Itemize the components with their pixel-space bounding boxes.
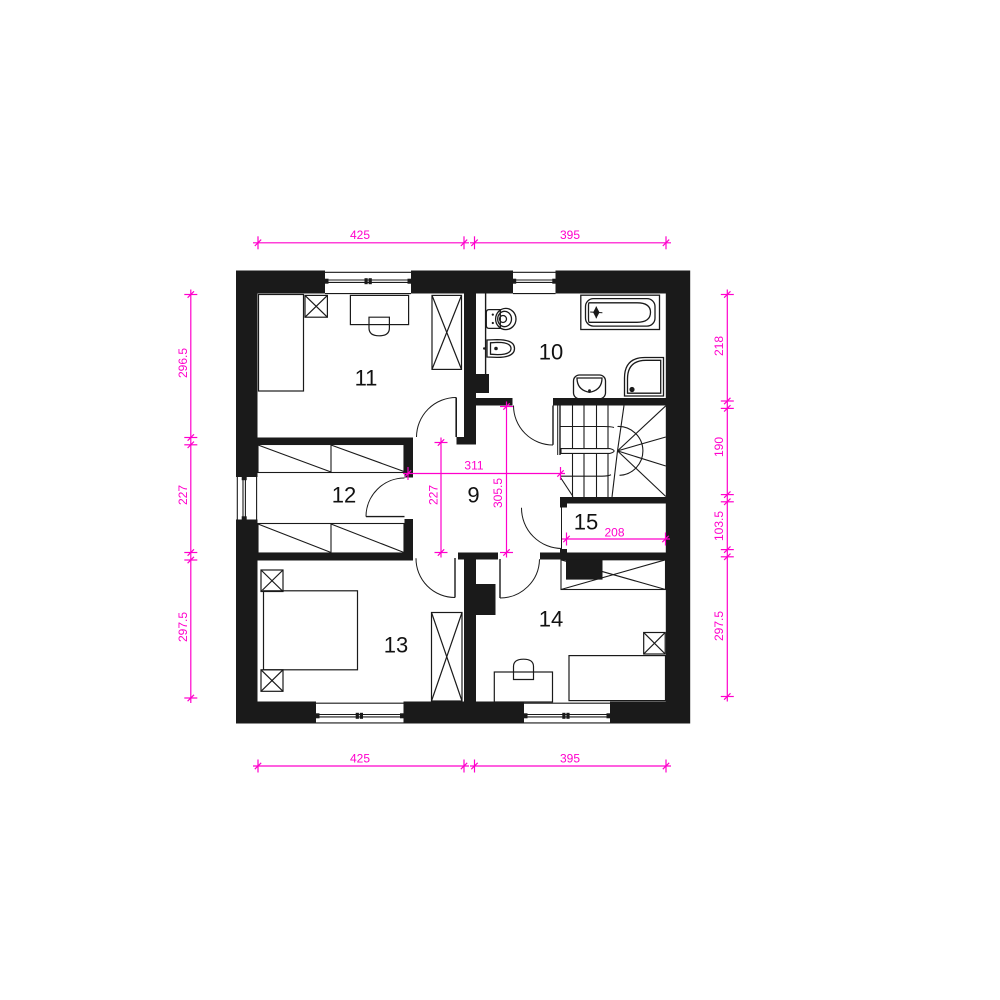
svg-text:190: 190 [712, 437, 726, 457]
svg-text:13: 13 [384, 633, 408, 658]
svg-text:395: 395 [560, 228, 580, 242]
svg-text:227: 227 [176, 485, 190, 505]
svg-text:227: 227 [427, 485, 441, 505]
svg-text:297.5: 297.5 [712, 611, 726, 641]
svg-text:103.5: 103.5 [712, 511, 726, 541]
svg-text:311: 311 [464, 459, 483, 473]
svg-text:15: 15 [574, 510, 598, 535]
svg-text:12: 12 [332, 483, 356, 508]
svg-text:297.5: 297.5 [176, 612, 190, 642]
svg-text:425: 425 [350, 752, 370, 766]
svg-text:425: 425 [350, 228, 370, 242]
svg-text:11: 11 [355, 366, 378, 391]
svg-text:218: 218 [712, 336, 726, 356]
svg-text:14: 14 [539, 607, 563, 632]
svg-text:10: 10 [539, 340, 563, 365]
svg-text:9: 9 [467, 483, 479, 508]
svg-text:305.5: 305.5 [491, 478, 505, 508]
svg-text:208: 208 [604, 526, 624, 540]
svg-text:296.5: 296.5 [176, 348, 190, 378]
svg-text:395: 395 [560, 752, 580, 766]
